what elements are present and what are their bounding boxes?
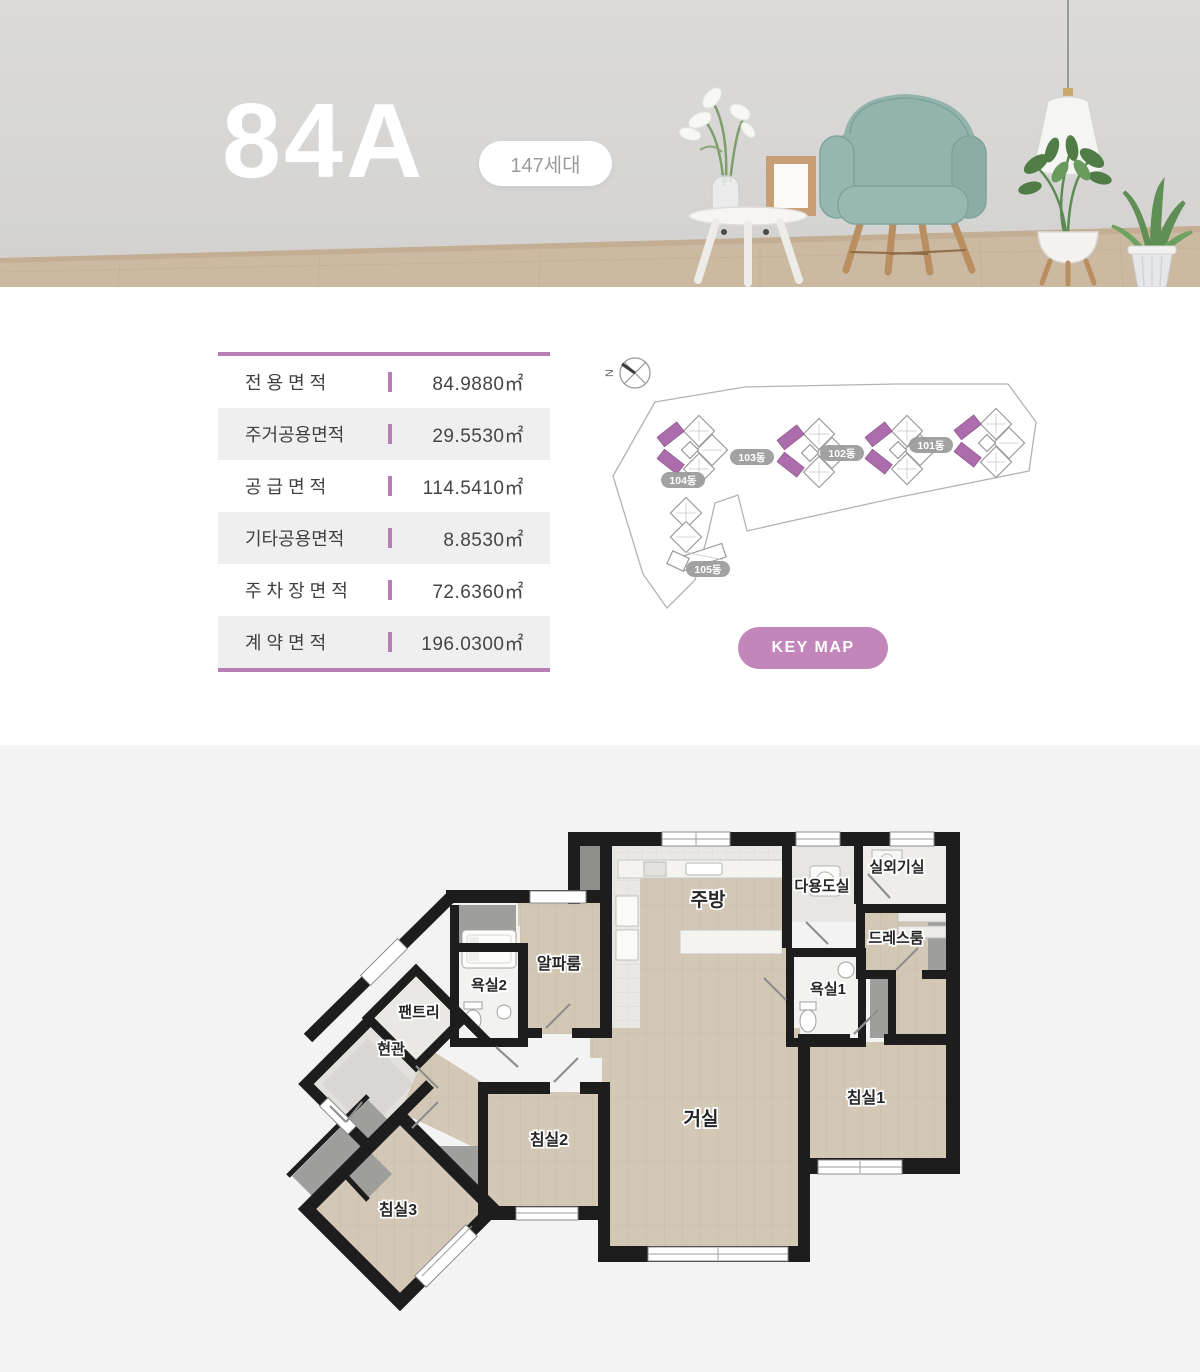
table-row: 주거공용면적 29.5530㎡ [218,408,550,460]
area-label: 공 급 면 적 [218,473,388,499]
floor-plan: 실외기실 다용도실 주방 드레스룸 욕실1 알파룸 욕실2 팬트리 현관 침실2… [250,810,970,1330]
area-label: 주거공용면적 [218,421,388,447]
building-label-105: 105동 [686,561,730,577]
room-label-bedroom1: 침실1 [847,1088,885,1107]
area-label: 주 차 장 면 적 [218,577,388,603]
building-label-102: 102동 [820,445,864,461]
table-row: 전 용 면 적 84.9880㎡ [218,356,550,408]
svg-text:102동: 102동 [828,448,856,460]
site-key-map: N 104동 103동 102동 [595,340,1055,650]
unit-title: 84A [222,88,425,194]
area-table: 전 용 면 적 84.9880㎡ 주거공용면적 29.5530㎡ 공 급 면 적… [218,352,550,672]
room-label-pantry: 팬트리 [398,1004,439,1021]
photo-frame [766,156,816,216]
room-label-outdoor-unit: 실외기실 [869,858,924,876]
building-label-103: 103동 [730,449,774,465]
hero-banner: 84A 147세대 [0,0,1200,287]
area-value: 196.0300㎡ [392,629,550,656]
table-bottom-rule [218,668,550,672]
room-label-bath2: 욕실2 [471,977,507,994]
svg-text:104동: 104동 [669,475,697,487]
svg-text:101동: 101동 [917,440,945,452]
compass-north-label: N [604,369,616,377]
key-map-button[interactable]: KEY MAP [738,627,888,669]
household-badge: 147세대 [479,141,612,186]
room-label-bath1: 욕실1 [810,981,846,998]
area-value: 8.8530㎡ [392,525,550,552]
area-value: 72.6360㎡ [392,577,550,604]
room-label-living: 거실 [684,1108,719,1130]
flower-vase [678,84,758,216]
room-label-bedroom3: 침실3 [379,1200,417,1219]
table-row: 기타공용면적 8.8530㎡ [218,512,550,564]
room-label-entrance: 현관 [377,1041,405,1058]
compass-icon: N [604,358,650,388]
table-row: 주 차 장 면 적 72.6360㎡ [218,564,550,616]
room-label-dressroom: 드레스룸 [868,930,923,947]
room-label-alpha: 알파룸 [537,955,581,973]
building-101 [954,408,1024,477]
room-label-kitchen: 주방 [691,889,726,911]
wood-floor [0,226,1200,287]
table-row: 공 급 면 적 114.5410㎡ [218,460,550,512]
building-label-104: 104동 [661,472,705,488]
area-label: 기타공용면적 [218,525,388,551]
area-label: 전 용 면 적 [218,369,388,395]
area-value: 114.5410㎡ [392,473,550,500]
area-value: 84.9880㎡ [392,369,550,396]
area-label: 계 약 면 적 [218,629,388,655]
room-label-bedroom2: 침실2 [530,1130,568,1149]
room-label-utility: 다용도실 [794,878,849,895]
area-value: 29.5530㎡ [392,421,550,448]
page: 84A 147세대 전 용 면 적 84.9880㎡ 주거공용면적 29.553… [0,0,1200,1372]
table-row: 계 약 면 적 196.0300㎡ [218,616,550,668]
svg-text:105동: 105동 [694,564,722,576]
svg-text:103동: 103동 [738,452,766,464]
building-label-101: 101동 [909,437,953,453]
info-section: 전 용 면 적 84.9880㎡ 주거공용면적 29.5530㎡ 공 급 면 적… [0,287,1200,745]
floor-plan-section: 실외기실 다용도실 주방 드레스룸 욕실1 알파룸 욕실2 팬트리 현관 침실2… [0,745,1200,1372]
building-105 [667,497,726,571]
